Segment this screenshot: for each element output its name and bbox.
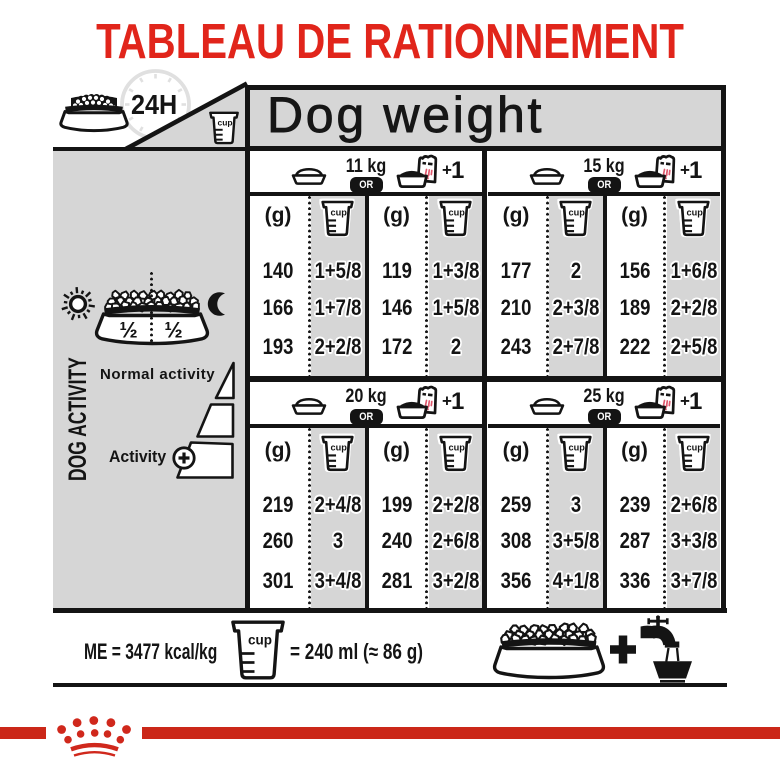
svg-text:cup: cup bbox=[248, 633, 272, 648]
svg-text:½: ½ bbox=[119, 318, 137, 343]
svg-text:½: ½ bbox=[164, 318, 182, 343]
